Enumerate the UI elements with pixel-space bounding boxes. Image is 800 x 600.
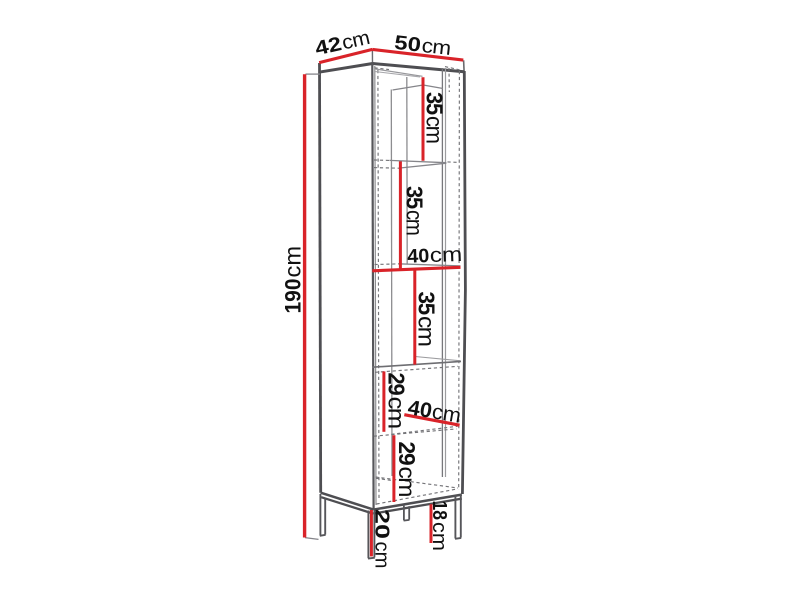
- svg-text:35cm: 35cm: [401, 186, 427, 235]
- svg-text:20cm: 20cm: [371, 509, 394, 569]
- svg-text:35cm: 35cm: [422, 92, 448, 143]
- svg-text:29cm: 29cm: [394, 442, 420, 497]
- svg-text:29cm: 29cm: [384, 373, 410, 429]
- svg-text:190cm: 190cm: [280, 246, 306, 314]
- svg-text:40cm: 40cm: [407, 243, 463, 268]
- svg-text:35cm: 35cm: [414, 292, 440, 347]
- svg-text:18cm: 18cm: [428, 501, 451, 552]
